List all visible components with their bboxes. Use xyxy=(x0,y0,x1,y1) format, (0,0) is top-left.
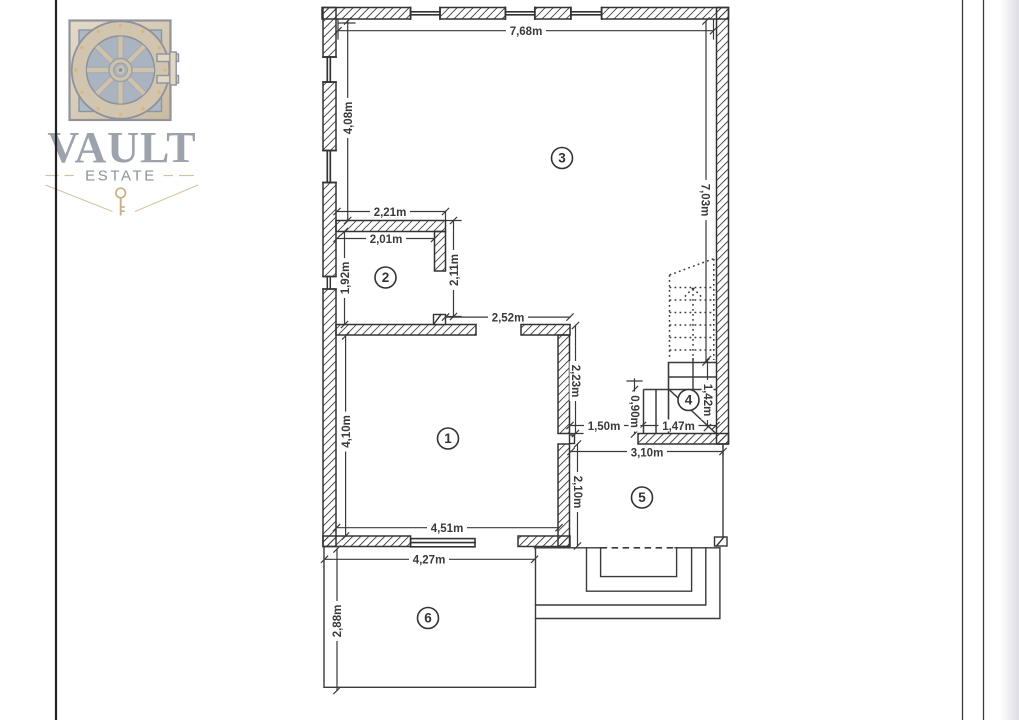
svg-text:2: 2 xyxy=(382,270,390,285)
svg-text:2,11m: 2,11m xyxy=(449,254,461,286)
svg-text:1,92m: 1,92m xyxy=(340,262,352,295)
svg-text:6: 6 xyxy=(424,611,432,626)
svg-text:2,01m: 2,01m xyxy=(370,234,403,246)
svg-text:4,51m: 4,51m xyxy=(431,523,464,535)
svg-text:2,88m: 2,88m xyxy=(332,605,344,638)
svg-text:2,52m: 2,52m xyxy=(492,312,525,324)
svg-text:4,27m: 4,27m xyxy=(413,555,446,567)
svg-text:7,03m: 7,03m xyxy=(699,184,711,217)
svg-text:4: 4 xyxy=(685,393,693,408)
svg-text:7,68m: 7,68m xyxy=(510,26,543,38)
svg-text:3,10m: 3,10m xyxy=(631,447,664,459)
svg-text:1,50m: 1,50m xyxy=(588,421,621,433)
svg-text:2,10m: 2,10m xyxy=(571,476,583,509)
svg-text:VAULT: VAULT xyxy=(47,123,196,172)
svg-text:5: 5 xyxy=(638,490,646,505)
svg-text:3: 3 xyxy=(558,151,566,166)
svg-text:1,42m: 1,42m xyxy=(701,384,713,417)
svg-text:0,90m: 0,90m xyxy=(628,395,640,428)
svg-text:2,23m: 2,23m xyxy=(569,365,581,398)
svg-text:ESTATE: ESTATE xyxy=(85,168,157,185)
svg-text:4,08m: 4,08m xyxy=(343,102,355,135)
svg-text:2,21m: 2,21m xyxy=(374,207,407,219)
svg-text:1,47m: 1,47m xyxy=(662,421,695,433)
svg-text:4,10m: 4,10m xyxy=(341,415,353,448)
svg-text:1: 1 xyxy=(444,431,452,446)
